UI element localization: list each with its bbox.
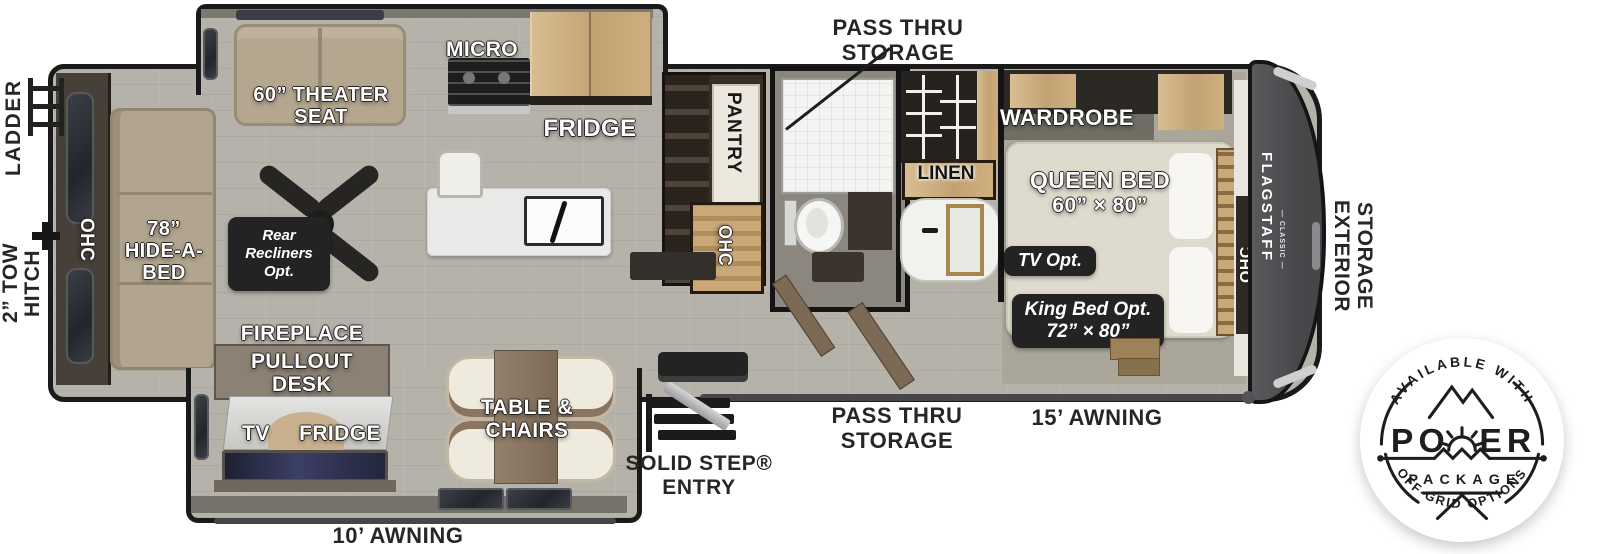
table-chairs-label: TABLE & CHAIRS (462, 396, 592, 442)
awning-roller-end (1242, 391, 1255, 404)
fridge-cabinet-base (530, 96, 652, 105)
ladder-rung (28, 122, 64, 127)
exterior-storage-label: EXTERIOR STORAGE (1330, 168, 1382, 344)
rear-ohc-label: OHC (75, 198, 96, 282)
closet-shelf (906, 112, 942, 115)
ladder-rung (28, 104, 64, 109)
wardrobe-wood-left (1010, 74, 1076, 108)
bed-step (1110, 338, 1160, 360)
kitchen-ohc-label: OHC (714, 210, 734, 282)
tv-label: TV (232, 422, 280, 445)
stove-cooktop (448, 58, 530, 106)
wardrobe-wood-right (1158, 74, 1224, 130)
shower (781, 78, 895, 194)
tow-hitch-label: 2” TOW HITCH (0, 228, 48, 338)
rear-recliners-option: Rear Recliners Opt. (228, 217, 330, 291)
fireplace-insert (222, 450, 388, 482)
closet-shelf (940, 100, 976, 103)
sofa-cushion-seam (116, 192, 212, 195)
fridge-label: FRIDGE (534, 116, 646, 142)
bed-step (1118, 358, 1160, 376)
ladder-icon (28, 78, 64, 136)
closet-shelf (906, 90, 942, 93)
fridge-cabinet-seam (589, 12, 591, 96)
floorplan-diagram: 60” THEATER SEAT MICRO FRIDGE OHC 78” HI… (0, 0, 1600, 554)
queen-bed-size: 60” × 80” (1018, 194, 1182, 217)
outside-griddle (658, 352, 748, 382)
theater-seat-label: 60” THEATER SEAT (246, 84, 396, 128)
badge-power-right: ER (1479, 423, 1536, 460)
pass-thru-bottom-label: PASS THRU STORAGE (822, 404, 972, 453)
entry-steps (646, 392, 738, 454)
brand-model: FLAGSTAFF (1258, 152, 1275, 320)
slideout-side-window (203, 28, 218, 80)
linen-label: LINEN (902, 163, 990, 185)
toilet-seat (806, 208, 828, 238)
pantry-label: PANTRY (722, 92, 744, 196)
awning-15-label: 15’ AWNING (1022, 406, 1172, 431)
island-stool (437, 150, 483, 198)
oven-handle (448, 106, 530, 114)
fridge-cabinet (530, 12, 652, 96)
bedroom-steps (812, 252, 864, 282)
vanity-mirror (946, 204, 984, 276)
desk-side-window (194, 394, 209, 460)
ladder-label: LADDER (2, 62, 26, 194)
power-package-badge: AVAILABLE WITH PO ER PACKAGE OFF-GRID OP… (1360, 338, 1564, 542)
desk-base (214, 480, 396, 492)
awning-10-label: 10’ AWNING (318, 524, 478, 549)
dinette-window (438, 488, 504, 510)
fireplace-label: FIREPLACE (222, 322, 382, 345)
awning-roller-15 (700, 394, 1248, 401)
queen-bed-label: QUEEN BED (1018, 168, 1182, 193)
rear-window-bottom (66, 268, 94, 364)
closet-shelf (906, 134, 942, 137)
kitchen-overhead (630, 252, 716, 280)
wardrobe-label: WARDROBE (998, 106, 1136, 130)
stove-burner (463, 72, 475, 84)
vanity-faucet (922, 228, 938, 233)
pullout-desk-label: PULLOUT DESK (240, 350, 364, 396)
step (658, 430, 736, 440)
ladder-rung (28, 86, 64, 91)
dinette-window (506, 488, 572, 510)
pass-thru-top-label: PASS THRU STORAGE (828, 16, 968, 65)
desk-fridge-label: FRIDGE (288, 422, 392, 445)
closet-rod (922, 75, 925, 159)
tv-option: TV Opt. (1004, 246, 1096, 276)
brand-series: — CLASSIC — (1278, 210, 1285, 280)
closet-shelf (940, 126, 976, 129)
closet-rod (956, 75, 959, 159)
exterior-storage-hatch (1312, 222, 1320, 270)
closet-panel (977, 71, 999, 163)
power-package-badge-art: AVAILABLE WITH PO ER PACKAGE OFF-GRID OP… (1360, 338, 1564, 542)
badge-power-left: PO (1391, 423, 1450, 460)
bath-counter (848, 192, 892, 250)
solid-step-label: SOLID STEP® ENTRY (624, 452, 774, 499)
hide-a-bed-label: 78” HIDE-A-BED (124, 218, 204, 284)
bed-pillow (1168, 246, 1214, 334)
theater-window (236, 10, 384, 20)
stove-burner (498, 72, 510, 84)
king-bed-line1: King Bed Opt. (1012, 299, 1164, 321)
